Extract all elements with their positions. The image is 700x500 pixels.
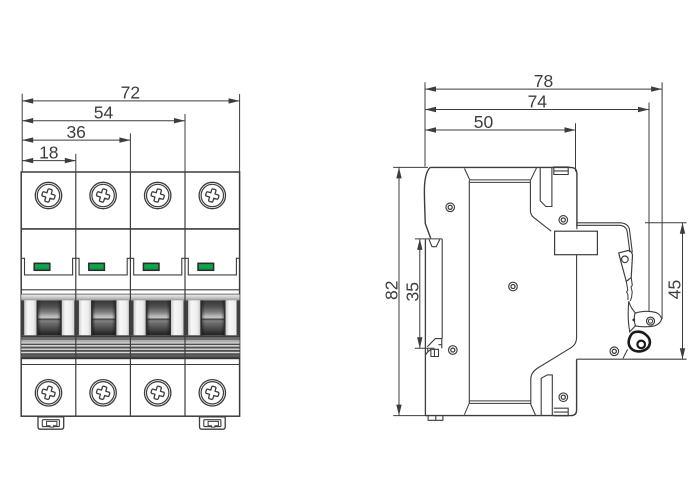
- svg-text:36: 36: [66, 122, 85, 142]
- svg-text:74: 74: [528, 91, 548, 111]
- svg-text:82: 82: [382, 281, 402, 300]
- svg-text:50: 50: [474, 112, 494, 132]
- svg-text:35: 35: [403, 282, 423, 301]
- svg-text:78: 78: [534, 71, 553, 91]
- svg-text:54: 54: [94, 103, 114, 123]
- svg-text:72: 72: [121, 83, 140, 103]
- svg-text:18: 18: [39, 143, 58, 163]
- svg-text:45: 45: [664, 280, 684, 299]
